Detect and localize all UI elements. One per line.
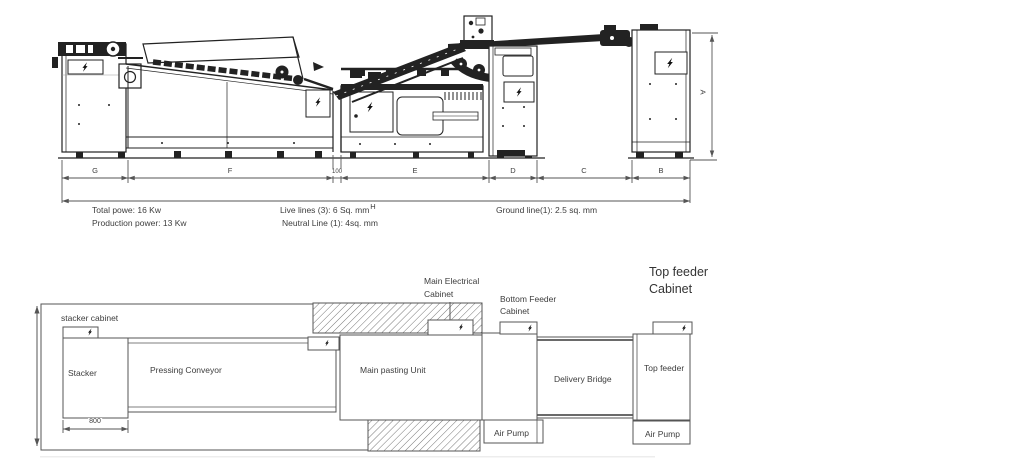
- diagram-line-art: [0, 0, 1024, 471]
- label-stacker-cabinet: stacker cabinet: [61, 314, 118, 323]
- spec-live-lines: Live lines (3): 6 Sq. mm: [280, 206, 369, 215]
- faint-rule: [40, 456, 655, 458]
- dim-label-a: A: [698, 90, 706, 95]
- label-delivery-bridge: Delivery Bridge: [554, 375, 612, 384]
- electric-box: [350, 92, 393, 132]
- spec-production-power: Production power: 13 Kw: [92, 219, 187, 228]
- label-bottom-feeder-cabinet-line1: Bottom Feeder: [500, 295, 556, 304]
- label-pressing-conveyor: Pressing Conveyor: [150, 366, 222, 375]
- spec-ground-line: Ground line(1): 2.5 sq. mm: [496, 206, 597, 215]
- bottom-feeder-cabinet-box: [500, 322, 537, 334]
- spec-neutral-line: Neutral Line (1): 4sq. mm: [282, 219, 378, 228]
- label-top-feeder-cabinet-line1: Top feeder: [649, 266, 708, 280]
- stacker-cabinet-elevation: [52, 42, 126, 152]
- label-main-pasting-unit: Main pasting Unit: [360, 366, 426, 375]
- spec-total-power: Total powe: 16 Kw: [92, 206, 161, 215]
- top-feeder-elevation: [632, 30, 690, 152]
- feed-hopper: [118, 37, 333, 89]
- label-top-feeder-cabinet-line2: Cabinet: [649, 283, 692, 297]
- dim-label-c: C: [581, 167, 586, 175]
- screenshot-root: G F 100 E D C B H A Total powe: 16 Kw Pr…: [0, 0, 1024, 471]
- dim-label-d: D: [510, 167, 515, 175]
- stacker-cabinet-box: [63, 327, 98, 338]
- top-feeder-outline: [633, 334, 690, 420]
- conveyor-electric-box: [308, 337, 339, 350]
- label-main-electrical-cabinet-line1: Main Electrical: [424, 277, 479, 286]
- label-bottom-feeder-cabinet-line2: Cabinet: [500, 307, 529, 316]
- main-pasting-unit-outline: [340, 335, 482, 420]
- label-air-pump-left: Air Pump: [494, 429, 529, 438]
- dim-label-h: H: [370, 203, 375, 211]
- label-top-feeder: Top feeder: [644, 364, 684, 373]
- label-air-pump-right: Air Pump: [645, 430, 680, 439]
- panel-dots: [161, 142, 295, 144]
- brush-row: [445, 92, 481, 100]
- hatch-zone-bottom: [368, 420, 480, 451]
- dim-label-g: G: [92, 167, 98, 175]
- label-main-electrical-cabinet-line2: Cabinet: [424, 290, 453, 299]
- dim-label-b: B: [658, 167, 663, 175]
- guide-wheel: [125, 72, 136, 83]
- dim-label-e: E: [412, 167, 417, 175]
- dim-label-100: 100: [331, 169, 343, 176]
- label-stacker: Stacker: [68, 369, 97, 378]
- top-feeder-cabinet-box: [653, 322, 692, 334]
- label-stacker-width: 800: [88, 418, 102, 426]
- bottom-feeder-outline: [482, 333, 537, 420]
- main-electrical-cabinet-box: [428, 320, 473, 335]
- feed-roller: [293, 75, 303, 85]
- panel-dots: [359, 143, 431, 145]
- dim-label-f: F: [228, 167, 233, 175]
- side-view: [52, 16, 718, 203]
- bottom-feeder-elevation: [489, 46, 537, 156]
